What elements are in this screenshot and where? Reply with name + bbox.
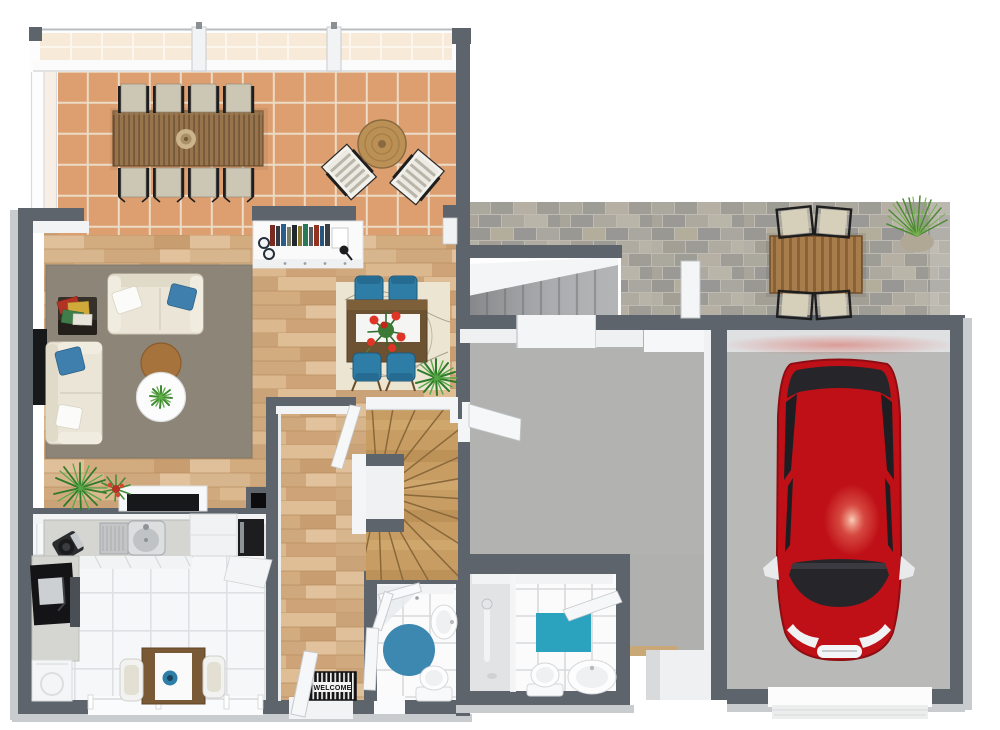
svg-text:WELCOME: WELCOME: [314, 685, 352, 692]
